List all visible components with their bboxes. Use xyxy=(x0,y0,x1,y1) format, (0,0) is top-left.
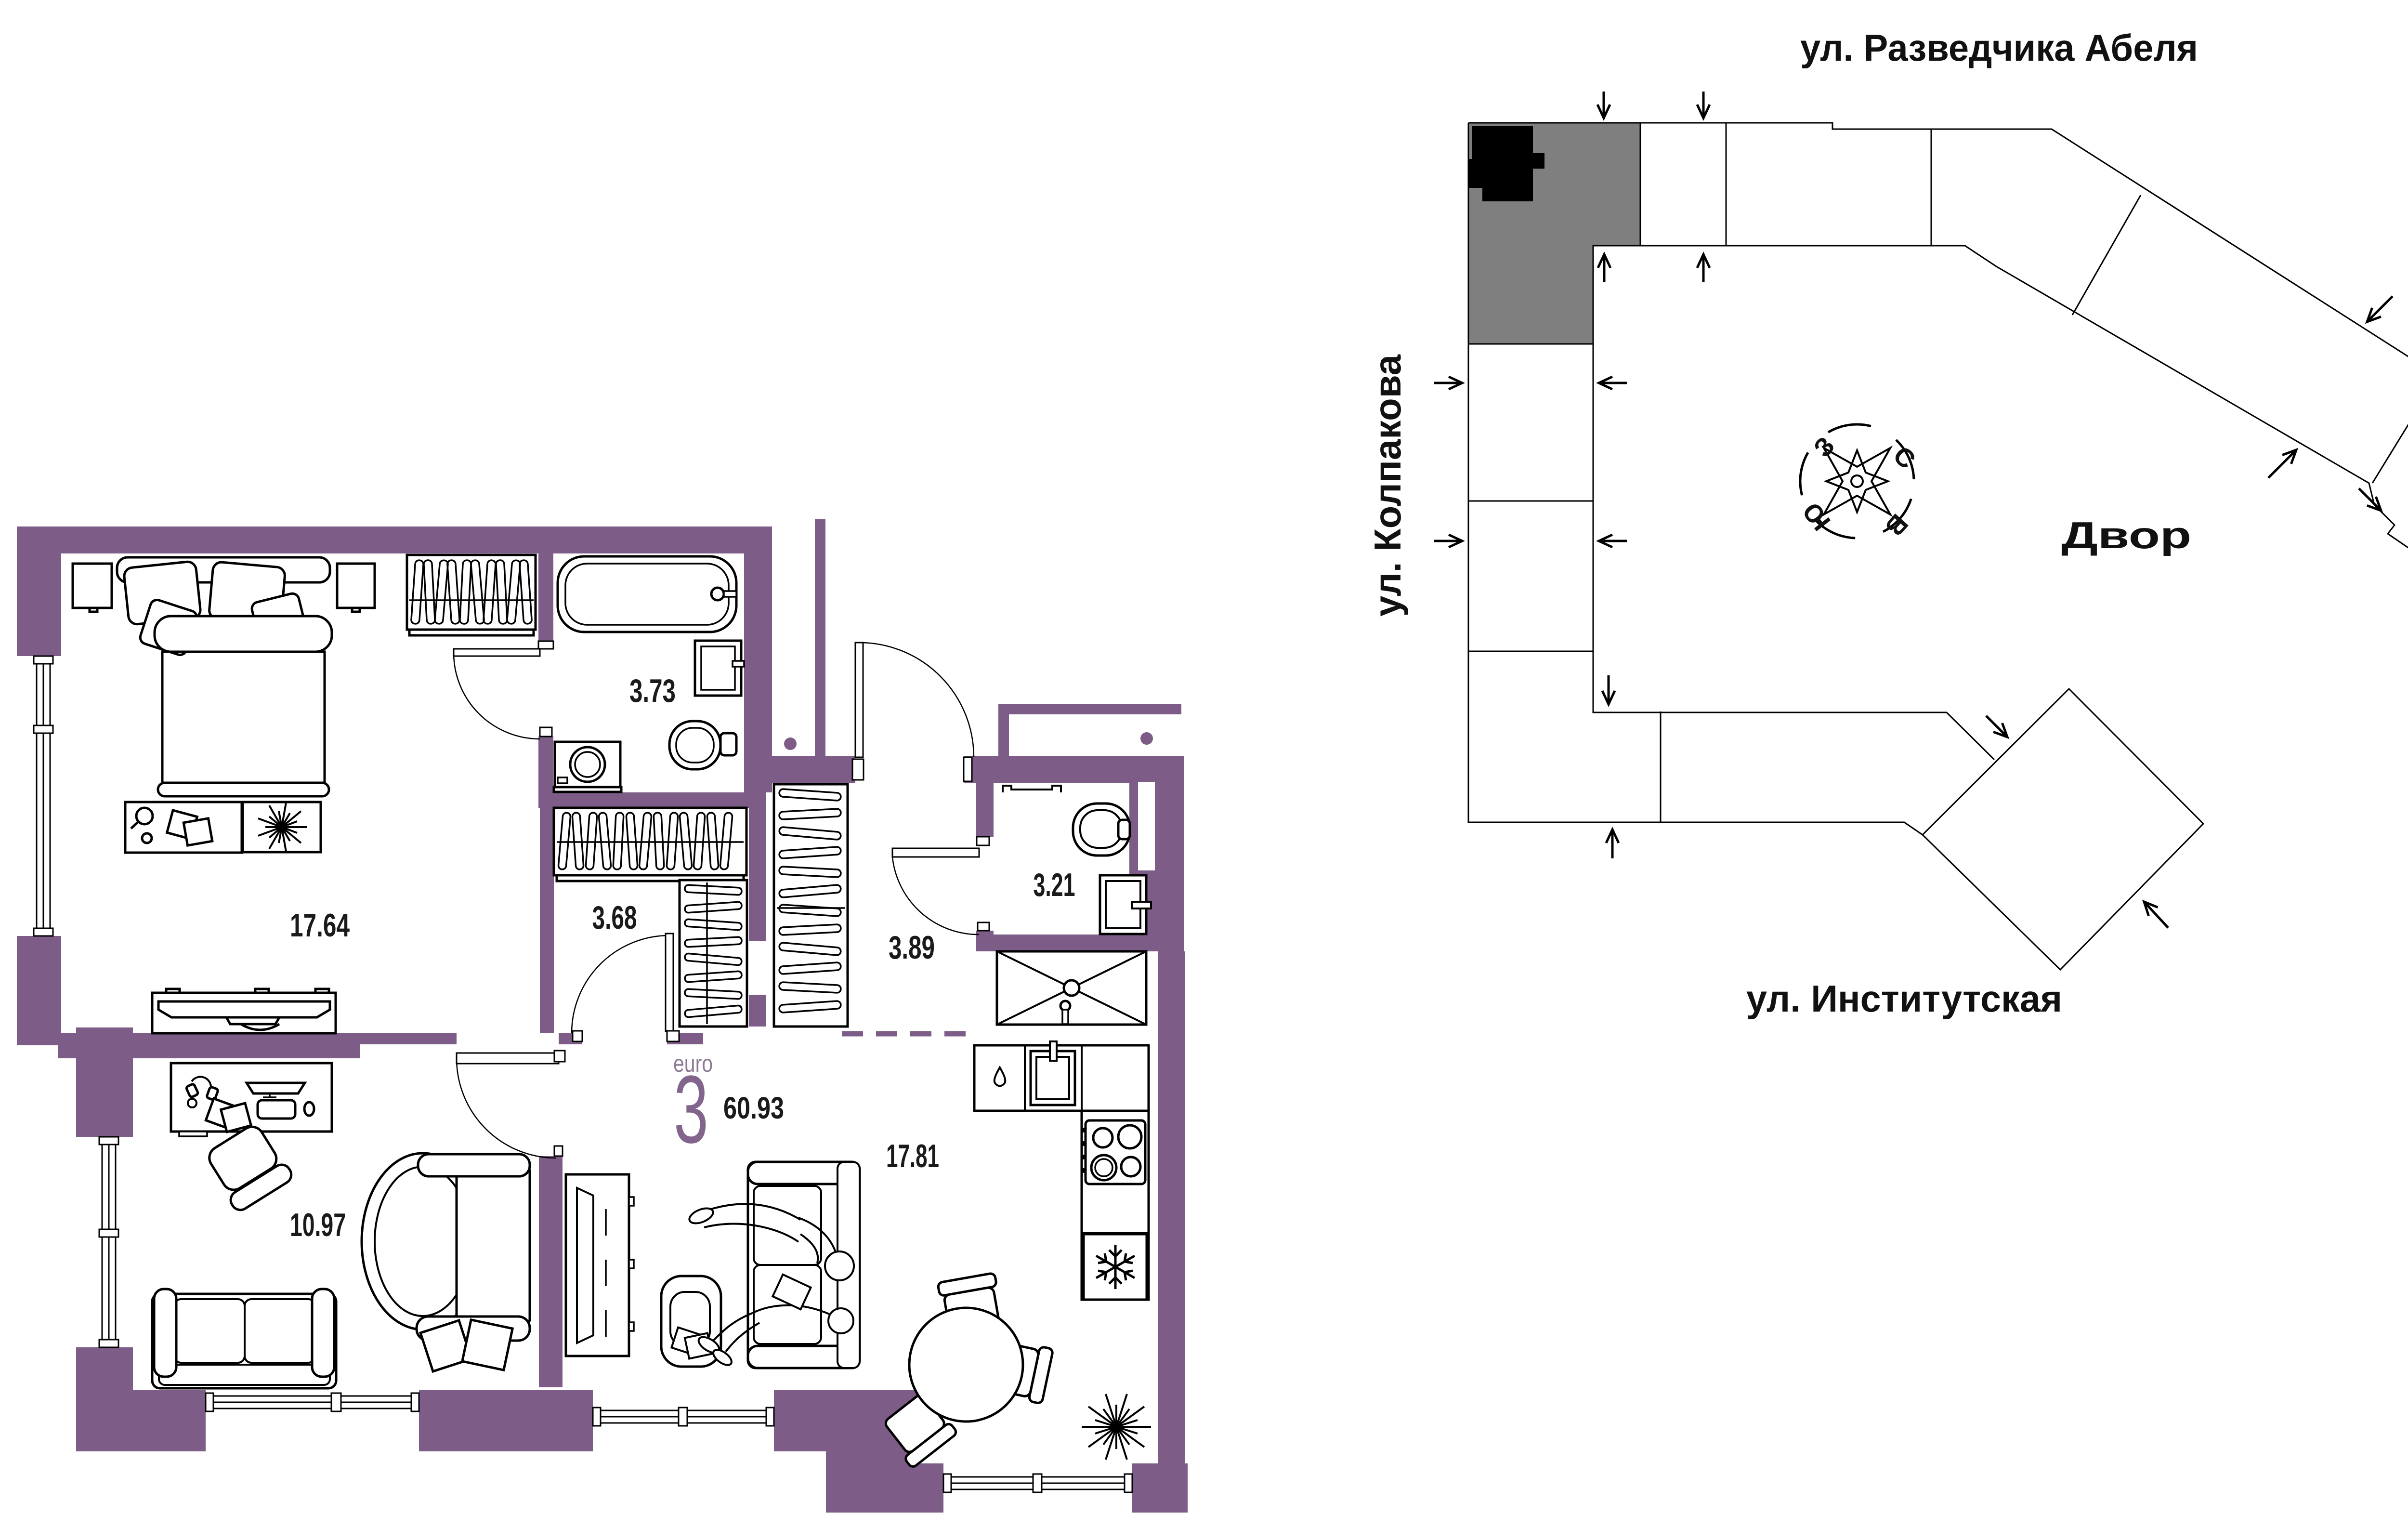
svg-text:3.21: 3.21 xyxy=(1034,867,1075,903)
svg-text:3: 3 xyxy=(674,1056,708,1163)
svg-text:ул. Колпакова: ул. Колпакова xyxy=(1366,354,1409,617)
svg-text:17.64: 17.64 xyxy=(290,907,350,944)
svg-text:17.81: 17.81 xyxy=(886,1138,939,1174)
svg-text:60.93: 60.93 xyxy=(723,1091,784,1125)
svg-text:ул. Институтская: ул. Институтская xyxy=(1746,977,2062,1020)
svg-text:10.97: 10.97 xyxy=(290,1207,346,1243)
svg-text:3.89: 3.89 xyxy=(889,929,935,966)
svg-text:3.68: 3.68 xyxy=(592,899,637,936)
svg-text:3.73: 3.73 xyxy=(629,672,676,709)
svg-text:Двор: Двор xyxy=(2061,514,2191,556)
svg-text:ул. Разведчика Абеля: ул. Разведчика Абеля xyxy=(1800,26,2198,69)
